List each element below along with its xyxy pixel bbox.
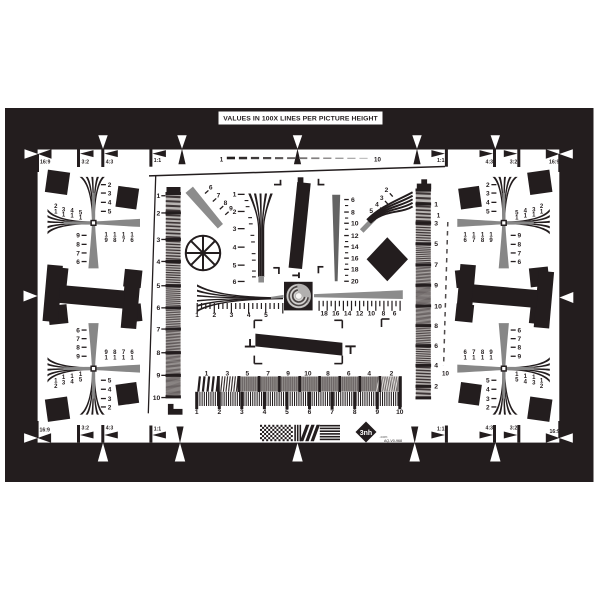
svg-text:9: 9 [286,370,290,377]
svg-text:16:9: 16:9 [40,159,50,165]
svg-text:2: 2 [434,384,438,391]
svg-text:2: 2 [486,182,490,189]
svg-text:5: 5 [285,409,289,416]
svg-text:3: 3 [230,312,234,319]
svg-text:2: 2 [390,370,394,377]
svg-text:7: 7 [157,326,161,333]
svg-text:3: 3 [486,190,490,197]
svg-text:8: 8 [224,200,228,207]
svg-text:4: 4 [108,200,112,207]
svg-text:10: 10 [304,370,312,377]
svg-text:9: 9 [157,373,161,380]
svg-text:14: 14 [351,244,359,251]
svg-text:2: 2 [217,409,221,416]
svg-text:1:1: 1:1 [154,158,162,164]
svg-text:3:2: 3:2 [82,426,90,432]
svg-text:7: 7 [517,250,521,257]
svg-text:9: 9 [517,354,521,361]
svg-text:8: 8 [76,345,80,352]
svg-text:1:1: 1:1 [437,158,445,164]
svg-text:10: 10 [153,395,161,402]
svg-text:4:3: 4:3 [106,426,114,432]
svg-text:2: 2 [108,182,112,189]
svg-text:5: 5 [233,263,237,270]
svg-text:9: 9 [76,233,80,240]
svg-text:3: 3 [225,370,229,377]
svg-text:7: 7 [330,409,334,416]
svg-text:8: 8 [351,209,355,216]
svg-text:4: 4 [233,245,237,252]
svg-text:7: 7 [76,336,80,343]
svg-text:1: 1 [437,213,441,220]
svg-text:6: 6 [233,279,237,286]
svg-text:4: 4 [263,409,267,416]
svg-text:5: 5 [486,378,490,385]
svg-text:AQ-V0-968: AQ-V0-968 [384,439,402,443]
svg-text:10: 10 [374,156,381,163]
svg-text:5: 5 [108,378,112,385]
svg-text:3:2: 3:2 [82,159,90,165]
svg-text:16: 16 [351,256,359,263]
svg-text:8: 8 [157,350,161,357]
svg-text:3: 3 [108,190,112,197]
svg-text:5: 5 [264,312,268,319]
svg-text:8: 8 [326,370,330,377]
svg-text:10: 10 [351,221,359,228]
svg-text:3: 3 [486,396,490,403]
svg-text:4: 4 [486,200,490,207]
svg-text:6: 6 [351,197,355,204]
svg-text:12: 12 [351,233,359,240]
svg-text:8: 8 [517,345,521,352]
svg-text:9: 9 [375,409,379,416]
svg-text:1: 1 [205,370,209,377]
svg-text:9: 9 [434,283,438,290]
svg-text:16: 16 [332,310,340,317]
svg-text:4:3: 4:3 [106,159,114,165]
svg-text:2: 2 [108,404,112,411]
svg-text:4:3: 4:3 [486,159,494,165]
svg-text:2: 2 [233,209,237,216]
svg-text:7: 7 [217,192,221,199]
svg-text:3:2: 3:2 [510,426,518,432]
svg-text:6: 6 [393,310,397,317]
svg-text:1:1: 1:1 [154,427,162,433]
svg-text:4: 4 [367,370,371,377]
svg-text:4: 4 [247,312,251,319]
svg-text:10: 10 [434,303,442,310]
svg-text:1: 1 [157,193,161,200]
svg-text:4: 4 [375,202,379,209]
svg-text:6: 6 [157,305,161,312]
svg-text:6: 6 [76,327,80,334]
svg-text:8: 8 [76,242,80,249]
svg-text:4:3: 4:3 [486,426,494,432]
svg-text:6: 6 [517,259,521,266]
svg-text:2: 2 [212,312,216,319]
svg-text:7: 7 [266,370,270,377]
svg-text:8: 8 [353,409,357,416]
svg-text:5: 5 [245,370,249,377]
svg-text:7: 7 [434,262,438,269]
svg-text:9: 9 [517,233,521,240]
svg-text:1: 1 [220,156,224,163]
svg-text:3: 3 [108,396,112,403]
svg-text:12: 12 [356,310,364,317]
svg-text:1:1: 1:1 [437,427,445,433]
svg-text:3: 3 [157,237,161,244]
svg-text:6: 6 [517,327,521,334]
svg-text:6: 6 [434,343,438,350]
svg-text:3nh: 3nh [360,430,372,437]
svg-text:18: 18 [351,267,359,274]
svg-text:10: 10 [368,310,376,317]
svg-text:1: 1 [233,192,237,199]
svg-text:7: 7 [517,336,521,343]
svg-text:8: 8 [434,323,438,330]
svg-text:10: 10 [442,371,449,378]
svg-text:4: 4 [434,363,438,370]
svg-text:5: 5 [486,209,490,216]
svg-text:5: 5 [157,283,161,290]
svg-text:2: 2 [385,187,389,194]
svg-text:4: 4 [108,387,112,394]
svg-text:8: 8 [517,242,521,249]
svg-text:1: 1 [195,409,199,416]
svg-text:3: 3 [434,220,438,227]
svg-text:14: 14 [344,310,352,317]
svg-text:3: 3 [233,226,237,233]
svg-text:6: 6 [308,409,312,416]
svg-text:6: 6 [209,184,213,191]
svg-text:20: 20 [351,279,359,286]
svg-text:5: 5 [108,209,112,216]
svg-text:16:9: 16:9 [40,428,50,434]
svg-text:8: 8 [382,310,386,317]
svg-text:5: 5 [434,241,438,248]
svg-text:16:9: 16:9 [549,159,559,165]
svg-text:VALUES IN 100X LINES PER PICTU: VALUES IN 100X LINES PER PICTURE HEIGHT [223,116,378,123]
svg-text:4: 4 [486,387,490,394]
svg-text:9: 9 [76,354,80,361]
svg-text:1: 1 [434,201,438,208]
svg-text:2: 2 [486,404,490,411]
svg-text:1: 1 [195,312,199,319]
svg-text:5: 5 [369,208,373,215]
svg-text:3: 3 [380,195,384,202]
svg-text:18: 18 [321,310,329,317]
svg-text:10: 10 [396,409,404,416]
svg-text:4: 4 [157,259,161,266]
svg-text:3: 3 [240,409,244,416]
svg-text:6: 6 [76,259,80,266]
svg-text:6: 6 [347,370,351,377]
svg-text:2: 2 [157,210,161,217]
svg-text:7: 7 [76,250,80,257]
svg-text:3:2: 3:2 [510,159,518,165]
